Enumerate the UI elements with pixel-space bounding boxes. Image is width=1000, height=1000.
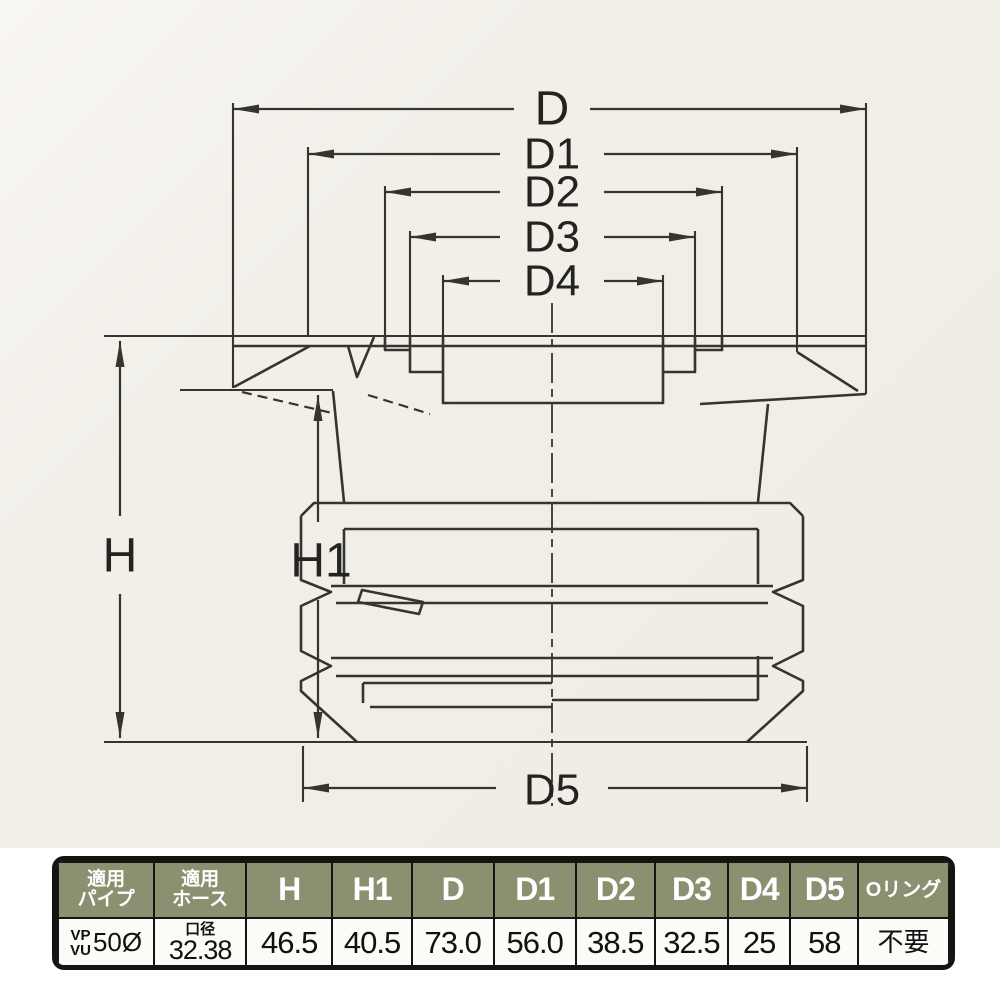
cell-D3: 32.5 <box>655 918 728 968</box>
value-D3: 32.5 <box>663 925 719 960</box>
cell-pipe: VP VU 50Ø <box>58 918 154 968</box>
dim-label-H1: H1 <box>290 535 351 588</box>
header-D5-label: D5 <box>805 871 844 907</box>
dimension-lines <box>120 109 866 788</box>
header-hose: 適用 ホース <box>154 862 246 918</box>
dim-label-H: H <box>103 530 138 583</box>
dim-label-D4: D4 <box>524 257 580 306</box>
pipe-vp: VP <box>70 928 91 943</box>
header-D2-label: D2 <box>596 871 635 907</box>
dim-label-D5: D5 <box>524 766 580 815</box>
extension-lines <box>104 103 866 802</box>
header-H: H <box>246 862 332 918</box>
header-pipe-line2: パイプ <box>59 890 153 910</box>
cell-H: 46.5 <box>246 918 332 968</box>
hose-value: 32.38 <box>169 937 232 964</box>
spec-table-frame: 適用 パイプ 適用 ホース H H1 D D1 D2 D3 D4 D5 Oリング… <box>52 856 955 970</box>
cell-hose: 口径 32.38 <box>154 918 246 968</box>
cell-D: 73.0 <box>412 918 494 968</box>
cell-H1: 40.5 <box>332 918 411 968</box>
header-D4: D4 <box>728 862 790 918</box>
value-H: 46.5 <box>261 925 317 960</box>
value-H1: 40.5 <box>344 925 400 960</box>
header-H1-label: H1 <box>353 871 392 907</box>
header-hose-line2: ホース <box>155 890 245 910</box>
fitting-cross-section-drawing: D D1 D2 D3 D4 H H1 D5 <box>0 0 1000 848</box>
header-pipe: 適用 パイプ <box>58 862 154 918</box>
cell-oring: 不要 <box>858 918 949 968</box>
spec-table: 適用 パイプ 適用 ホース H H1 D D1 D2 D3 D4 D5 Oリング… <box>57 861 950 969</box>
header-pipe-line1: 適用 <box>59 870 153 890</box>
pipe-vu: VU <box>70 943 91 958</box>
spec-value-row: VP VU 50Ø 口径 32.38 46.5 40.5 73.0 56.0 3… <box>58 918 949 968</box>
dim-label-D: D <box>535 83 570 136</box>
catalog-page: { "drawing": { "dim_labels": { "d":"D", … <box>0 0 1000 1000</box>
value-D: 73.0 <box>425 925 481 960</box>
header-oring-label: Oリング <box>866 879 942 901</box>
spec-header-row: 適用 パイプ 適用 ホース H H1 D D1 D2 D3 D4 D5 Oリング <box>58 862 949 918</box>
header-D1-label: D1 <box>515 871 554 907</box>
header-D2: D2 <box>576 862 655 918</box>
header-D3-label: D3 <box>672 871 711 907</box>
pipe-size: 50Ø <box>93 929 142 956</box>
header-D4-label: D4 <box>740 871 779 907</box>
cell-D5: 58 <box>790 918 858 968</box>
value-oring: 不要 <box>878 927 930 957</box>
header-H-label: H <box>278 871 300 907</box>
header-D: D <box>412 862 494 918</box>
technical-drawing-area: D D1 D2 D3 D4 H H1 D5 <box>0 0 1000 848</box>
header-hose-line1: 適用 <box>155 870 245 890</box>
dim-label-D3: D3 <box>524 213 580 262</box>
value-D1: 56.0 <box>506 925 562 960</box>
cell-D4: 25 <box>728 918 790 968</box>
value-D5: 58 <box>808 925 840 960</box>
header-D-label: D <box>442 871 464 907</box>
dim-label-D2: D2 <box>524 168 580 217</box>
cell-D2: 38.5 <box>576 918 655 968</box>
value-D4: 25 <box>743 925 775 960</box>
header-D3: D3 <box>655 862 728 918</box>
header-oring: Oリング <box>858 862 949 918</box>
value-D2: 38.5 <box>587 925 643 960</box>
header-H1: H1 <box>332 862 411 918</box>
header-D1: D1 <box>494 862 576 918</box>
header-D5: D5 <box>790 862 858 918</box>
cell-D1: 56.0 <box>494 918 576 968</box>
